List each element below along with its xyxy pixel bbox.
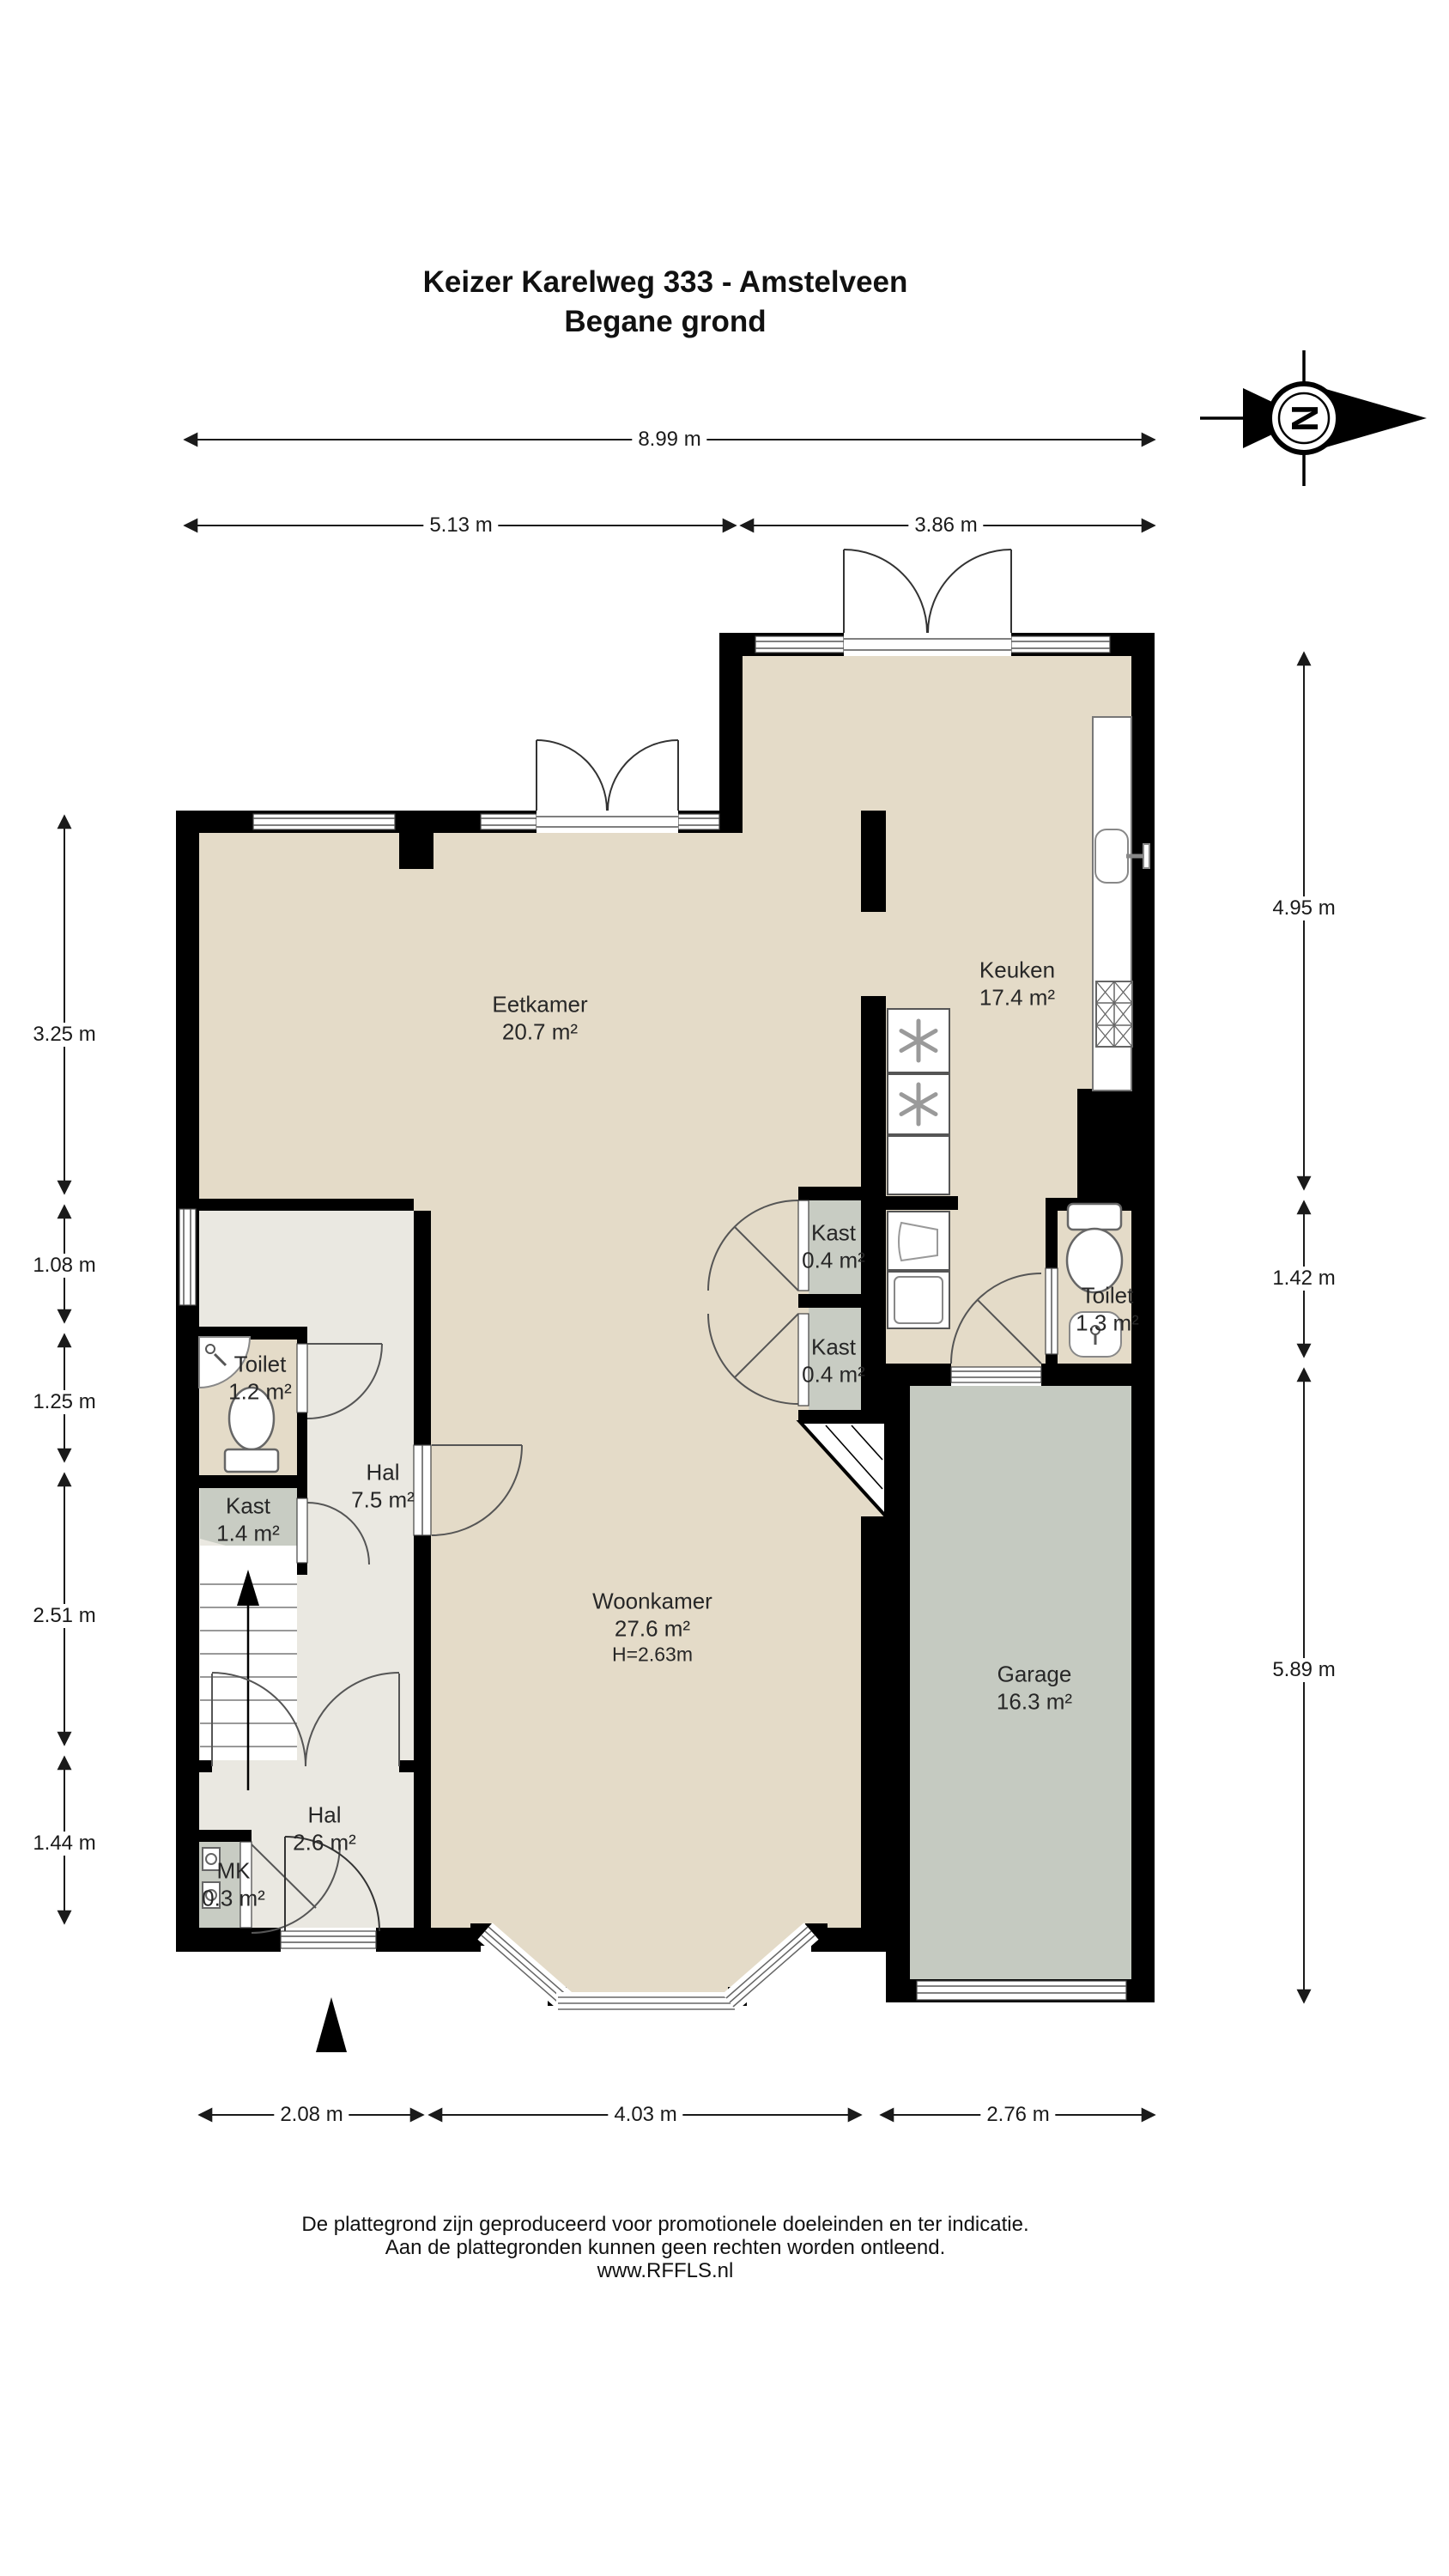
room-label-toilet-rechts: Toilet 1.3 m²	[1076, 1282, 1139, 1336]
room-label-toilet-links: Toilet 1.2 m²	[228, 1351, 292, 1405]
room-label-hal-entree: Hal 2.6 m²	[293, 1801, 356, 1856]
dimension-label: 2.51 m	[27, 1604, 101, 1628]
window-band	[678, 814, 719, 829]
dimension-label: 1.42 m	[1266, 1267, 1341, 1291]
room-label-garage: Garage 16.3 m²	[997, 1661, 1072, 1715]
title-address: Keizer Karelweg 333 - Amstelveen	[423, 263, 908, 302]
dimension-label: 5.13 m	[423, 513, 498, 538]
floors	[199, 655, 1131, 2002]
floor-plan	[0, 0, 1449, 2576]
page-title: Keizer Karelweg 333 - Amstelveen Begane …	[423, 263, 908, 341]
room-label-woonkamer: Woonkamer 27.6 m² H=2.63m	[592, 1588, 712, 1666]
dimension-label: 1.08 m	[27, 1254, 101, 1278]
garage-door	[917, 1981, 1126, 2000]
window-band	[481, 814, 537, 829]
window-band	[755, 636, 844, 653]
window-band-vertical	[179, 1209, 196, 1305]
dimension-label: 3.86 m	[908, 513, 983, 538]
disclaimer-footer: De plattegrond zijn geproduceerd voor pr…	[301, 2213, 1028, 2282]
dimension-label: 4.95 m	[1266, 896, 1341, 920]
room-label-kast-center-top: Kast 0.4 m²	[802, 1219, 865, 1273]
door-toilet-rechts	[1046, 1268, 1058, 1354]
window-band	[253, 814, 395, 829]
dimension-label: 8.99 m	[632, 428, 706, 452]
room-label-hal-groot: Hal 7.5 m²	[351, 1459, 415, 1513]
window-band	[1011, 636, 1110, 653]
room-label-eetkamer: Eetkamer 20.7 m²	[492, 991, 587, 1045]
dimension-label: 4.03 m	[608, 2103, 682, 2127]
dimension-label: 1.25 m	[27, 1390, 101, 1414]
room-label-kast-links: Kast 1.4 m²	[216, 1492, 280, 1546]
appliance-column	[888, 1009, 949, 1328]
room-label-keuken: Keuken 17.4 m²	[979, 957, 1055, 1011]
floorplan-page: Keizer Karelweg 333 - Amstelveen Begane …	[0, 0, 1449, 2576]
dimension-label: 5.89 m	[1266, 1658, 1341, 1682]
dimension-label: 2.76 m	[980, 2103, 1055, 2127]
dimension-label: 3.25 m	[27, 1023, 101, 1047]
title-floor: Begane grond	[423, 302, 908, 342]
washer-icon	[894, 1277, 943, 1323]
compass-letter: N	[1282, 404, 1325, 432]
french-door-eetkamer	[537, 740, 678, 833]
entrance-arrow-icon	[316, 1997, 347, 2052]
dimension-label: 1.44 m	[27, 1832, 101, 1856]
french-door-keuken	[844, 550, 1011, 656]
room-label-mk: MK 0.3 m²	[202, 1857, 265, 1911]
stove-icon	[1096, 981, 1132, 1047]
room-label-kast-center-bottom: Kast 0.4 m²	[802, 1334, 865, 1388]
dimension-label: 2.08 m	[274, 2103, 349, 2127]
toilet-tank-icon	[1068, 1204, 1121, 1230]
toilet-tank-icon	[225, 1449, 278, 1472]
